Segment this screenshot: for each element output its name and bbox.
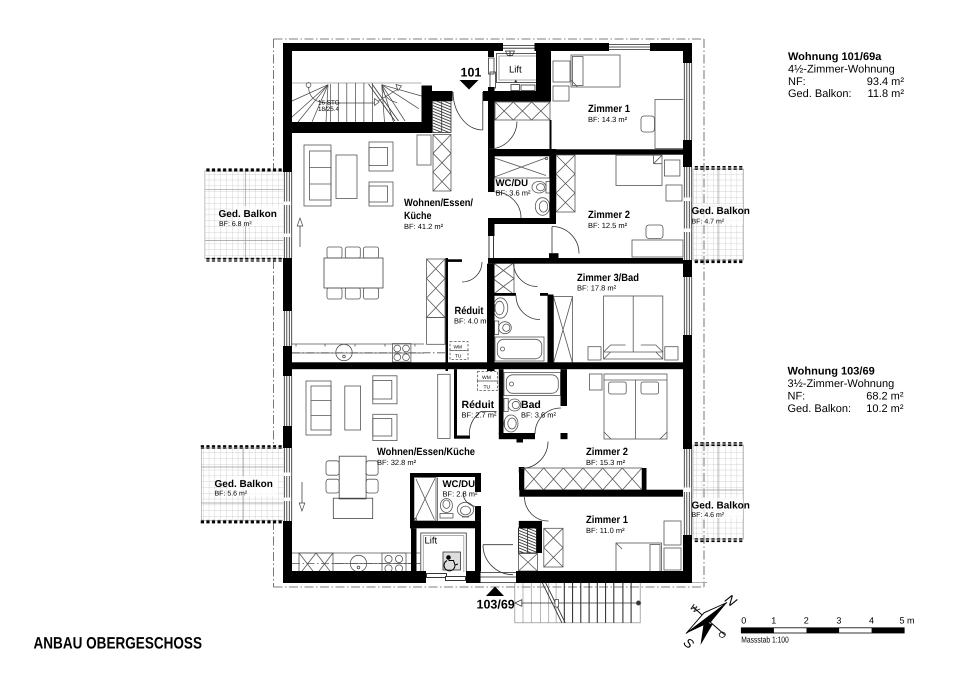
- svg-text:BF: 11.0 m²: BF: 11.0 m²: [586, 526, 625, 535]
- svg-text:BF: 4.0 m²: BF: 4.0 m²: [454, 317, 490, 326]
- svg-text:BF: 2.8 m²: BF: 2.8 m²: [443, 490, 479, 499]
- svg-text:Zimmer 2: Zimmer 2: [586, 446, 628, 458]
- svg-text:93.4 m²: 93.4 m²: [867, 76, 905, 88]
- svg-text:BF: 32.8 m²: BF: 32.8 m²: [377, 458, 417, 467]
- svg-text:Réduit: Réduit: [462, 399, 495, 411]
- svg-text:BF: 5.6 m²: BF: 5.6 m²: [215, 491, 248, 498]
- svg-text:WM: WM: [482, 375, 491, 381]
- svg-text:Ged. Balkon:: Ged. Balkon:: [788, 88, 852, 100]
- svg-text:Zimmer 1: Zimmer 1: [588, 103, 630, 115]
- svg-text:4: 4: [869, 616, 874, 626]
- svg-text:Ged. Balkon: Ged. Balkon: [692, 206, 750, 217]
- svg-text:Ged. Balkon:: Ged. Balkon:: [788, 403, 852, 415]
- svg-text:Wohnen/Essen/Küche: Wohnen/Essen/Küche: [377, 446, 475, 458]
- svg-text:BF: 4.7 m²: BF: 4.7 m²: [692, 219, 725, 226]
- svg-text:103/69: 103/69: [477, 598, 515, 612]
- svg-text:Lift: Lift: [425, 536, 438, 547]
- svg-text:10.2 m²: 10.2 m²: [866, 403, 904, 415]
- svg-text:BF: 3.6 m²: BF: 3.6 m²: [496, 189, 532, 198]
- svg-text:TU: TU: [484, 385, 491, 391]
- svg-text:18/25.4: 18/25.4: [318, 106, 340, 113]
- svg-text:Wohnen/Essen/: Wohnen/Essen/: [404, 197, 473, 209]
- svg-text:Ged. Balkon: Ged. Balkon: [219, 209, 277, 220]
- svg-text:Ged. Balkon: Ged. Balkon: [215, 479, 273, 490]
- svg-text:0: 0: [741, 616, 746, 626]
- svg-text:BF: 3.6 m²: BF: 3.6 m²: [521, 411, 557, 420]
- svg-text:WM: WM: [454, 345, 463, 351]
- svg-text:3½-Zimmer-Wohnung: 3½-Zimmer-Wohnung: [788, 378, 895, 390]
- svg-text:1: 1: [771, 616, 776, 626]
- svg-text:NF:: NF:: [788, 76, 806, 88]
- svg-text:Zimmer 2: Zimmer 2: [588, 209, 630, 221]
- svg-text:Massstab 1:100: Massstab 1:100: [741, 635, 789, 645]
- svg-text:NF:: NF:: [788, 390, 806, 402]
- svg-text:WC/DU: WC/DU: [496, 178, 529, 189]
- svg-text:11.8 m²: 11.8 m²: [868, 88, 905, 100]
- svg-text:BF: 12.5 m²: BF: 12.5 m²: [588, 221, 628, 230]
- svg-text:Réduit: Réduit: [455, 305, 484, 317]
- svg-text:BF: 17.8 m²: BF: 17.8 m²: [577, 284, 617, 293]
- svg-text:BF: 14.3 m²: BF: 14.3 m²: [588, 115, 628, 124]
- svg-text:WC/DU: WC/DU: [443, 479, 476, 490]
- svg-text:Lift: Lift: [509, 65, 522, 76]
- svg-text:101: 101: [461, 66, 482, 80]
- svg-text:Küche: Küche: [404, 210, 432, 222]
- svg-text:BF: 6.8 m²: BF: 6.8 m²: [219, 221, 252, 228]
- svg-text:Wohnung 103/69: Wohnung 103/69: [788, 366, 875, 378]
- svg-text:BF: 41.2 m²: BF: 41.2 m²: [404, 222, 444, 231]
- svg-text:Zimmer 1: Zimmer 1: [586, 514, 628, 526]
- svg-text:5 m: 5 m: [900, 616, 915, 626]
- svg-text:Ged. Balkon: Ged. Balkon: [692, 501, 750, 512]
- svg-text:BF: 4.6 m²: BF: 4.6 m²: [692, 512, 725, 519]
- svg-text:BF: 2.7 m²: BF: 2.7 m²: [462, 411, 498, 420]
- svg-text:BF: 15.3 m²: BF: 15.3 m²: [586, 458, 626, 467]
- svg-text:Wohnung 101/69a: Wohnung 101/69a: [788, 51, 882, 63]
- svg-text:Bad: Bad: [521, 399, 541, 411]
- svg-text:ANBAU OBERGESCHOSS: ANBAU OBERGESCHOSS: [34, 635, 203, 653]
- svg-text:Zimmer 3/Bad: Zimmer 3/Bad: [577, 272, 639, 284]
- svg-text:3: 3: [836, 616, 841, 626]
- svg-text:TU: TU: [455, 354, 462, 360]
- svg-text:2: 2: [804, 616, 809, 626]
- svg-text:4½-Zimmer-Wohnung: 4½-Zimmer-Wohnung: [788, 63, 895, 75]
- svg-text:68.2 m²: 68.2 m²: [866, 390, 904, 402]
